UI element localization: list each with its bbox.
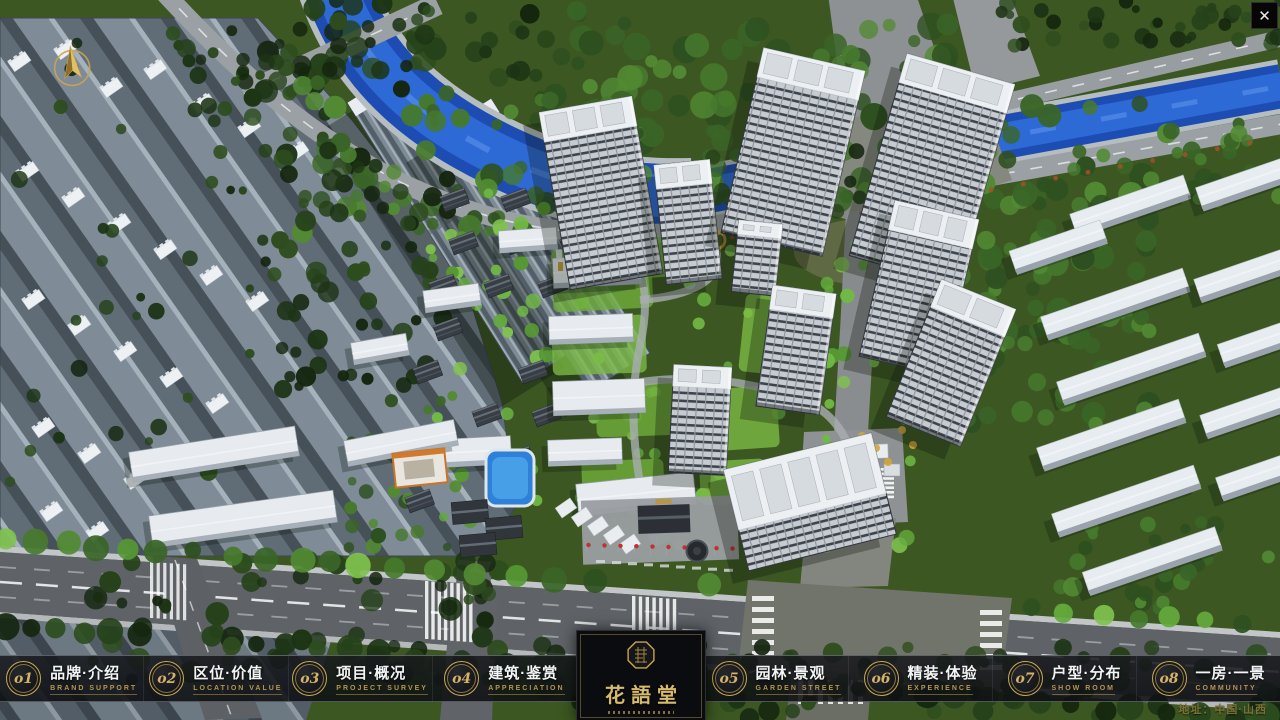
- nav-badge-number: o2: [157, 671, 176, 687]
- nav-item-title: 建筑·鉴赏: [488, 662, 558, 683]
- nav-item-subtitle: SHOW ROOM: [1052, 685, 1116, 695]
- close-button[interactable]: ✕: [1251, 2, 1278, 29]
- nav-item-title: 品牌·介绍: [50, 662, 120, 683]
- nav-item-title: 区位·价值: [193, 662, 263, 683]
- project-logo[interactable]: 花語堂: [576, 630, 706, 720]
- nav-badge: o7: [1008, 661, 1043, 696]
- nav-group-left: o1 品牌·介绍 BRAND SUPPORT o2 区位·价值 LOCATION…: [0, 656, 576, 701]
- app-window: ✕ o1 品牌·介绍 BRAND SUPPORT o2 区位·价值 LOCATI…: [0, 0, 1280, 720]
- nav-badge-number: o5: [720, 671, 739, 687]
- nav-item-subtitle: LOCATION VALUE: [193, 685, 282, 695]
- nav-item-title: 户型·分布: [1052, 662, 1122, 683]
- nav-badge-number: o4: [452, 671, 471, 687]
- logo-caption: [608, 711, 674, 714]
- aerial-render: [0, 0, 1280, 720]
- nav-item-subtitle: APPRECIATION: [488, 685, 564, 695]
- close-icon: ✕: [1258, 7, 1271, 25]
- nav-badge: o1: [6, 661, 41, 696]
- nav-item-subtitle: GARDEN STREET: [756, 685, 842, 695]
- project-name: 花語堂: [599, 679, 683, 708]
- nav-badge-number: o6: [871, 671, 890, 687]
- nav-badge: o6: [864, 661, 899, 696]
- nav-item-room-view[interactable]: o8 一房·一景 COMMUNITY: [1136, 656, 1280, 701]
- nav-item-subtitle: COMMUNITY: [1196, 685, 1257, 695]
- nav-item-title: 精装·体验: [908, 662, 978, 683]
- nav-badge-number: o3: [300, 671, 319, 687]
- nav-badge-number: o8: [1159, 671, 1178, 687]
- nav-item-subtitle: PROJECT SURVEY: [336, 685, 428, 695]
- nav-badge: o4: [444, 661, 479, 696]
- nav-item-title: 一房·一景: [1196, 662, 1266, 683]
- nav-item-interior-experience[interactable]: o6 精装·体验 EXPERIENCE: [848, 656, 992, 701]
- nav-item-title: 项目·概况: [336, 662, 406, 683]
- nav-badge-number: o1: [14, 671, 33, 687]
- nav-item-brand-intro[interactable]: o1 品牌·介绍 BRAND SUPPORT: [0, 656, 143, 701]
- nav-item-floorplans[interactable]: o7 户型·分布 SHOW ROOM: [992, 656, 1136, 701]
- nav-item-subtitle: BRAND SUPPORT: [50, 685, 137, 695]
- nav-badge: o2: [149, 661, 184, 696]
- nav-badge-number: o7: [1015, 671, 1034, 687]
- nav-item-landscape[interactable]: o5 园林·景观 GARDEN STREET: [704, 656, 848, 701]
- seal-icon: [625, 639, 657, 676]
- nav-badge: o8: [1152, 661, 1187, 696]
- nav-item-architecture[interactable]: o4 建筑·鉴赏 APPRECIATION: [432, 656, 576, 701]
- address-text: 地址：中国·山西: [1178, 701, 1267, 717]
- nav-badge: o3: [292, 661, 327, 696]
- nav-item-title: 园林·景观: [756, 662, 826, 683]
- nav-item-project-overview[interactable]: o3 项目·概况 PROJECT SURVEY: [288, 656, 432, 701]
- nav-item-location-value[interactable]: o2 区位·价值 LOCATION VALUE: [143, 656, 287, 701]
- nav-group-right: o5 园林·景观 GARDEN STREET o6 精装·体验 EXPERIEN…: [704, 656, 1280, 701]
- nav-badge: o5: [712, 661, 747, 696]
- nav-item-subtitle: EXPERIENCE: [908, 685, 973, 695]
